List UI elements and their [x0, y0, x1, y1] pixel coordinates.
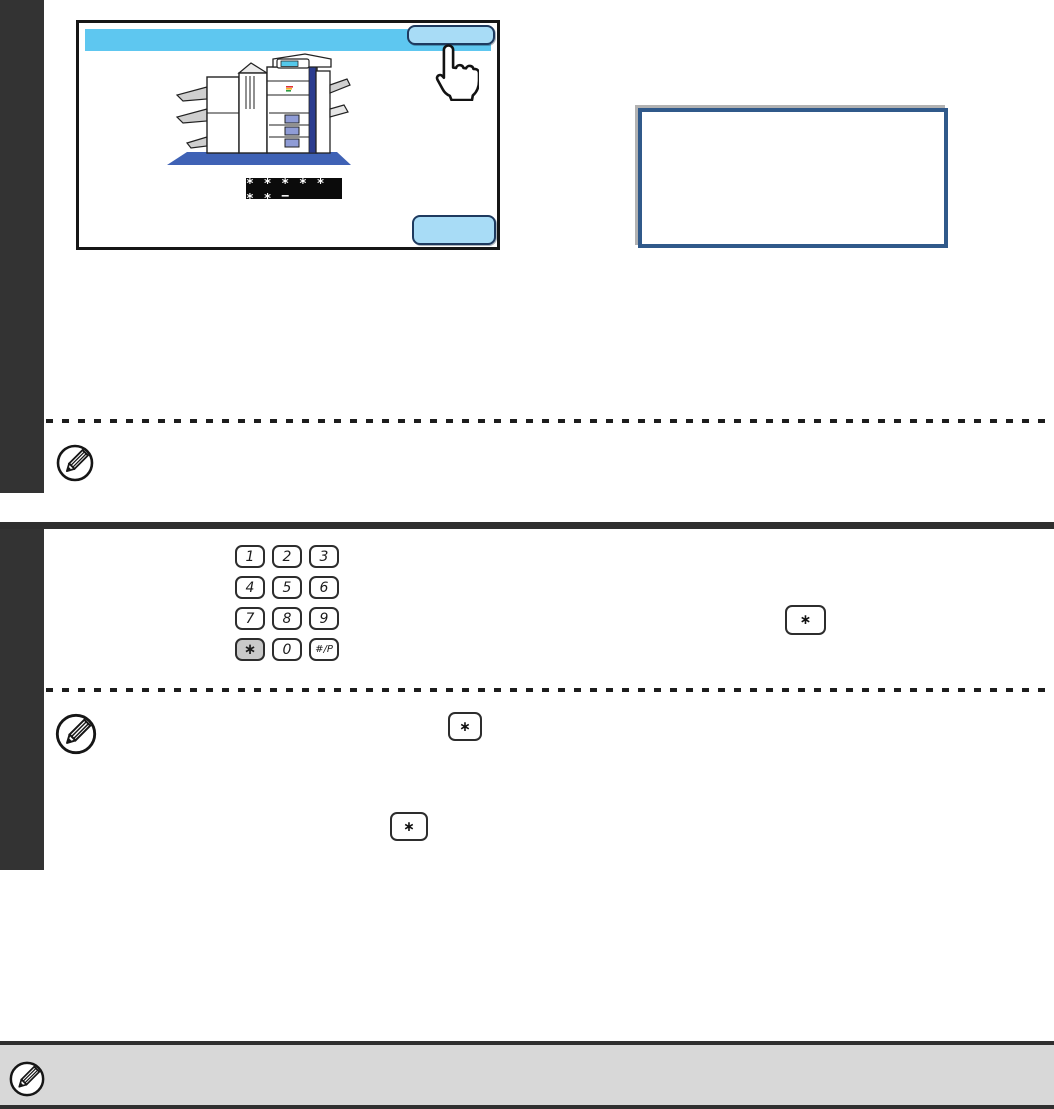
- keypad-key-9[interactable]: 9: [309, 607, 339, 630]
- ok-touch-button[interactable]: [412, 215, 496, 245]
- keypad-key-hash-p[interactable]: #/P: [309, 638, 339, 661]
- multifunction-printer-illustration: [161, 51, 355, 171]
- dashed-separator: [46, 688, 1050, 692]
- callout-box: [638, 108, 948, 248]
- note-pencil-icon: [8, 1060, 46, 1098]
- dashed-separator: [46, 419, 1050, 423]
- keypad-key-star[interactable]: ∗: [235, 638, 265, 661]
- keypad-key-6[interactable]: 6: [309, 576, 339, 599]
- note-pencil-icon: [54, 712, 98, 756]
- keypad-key-1[interactable]: 1: [235, 545, 265, 568]
- keypad-key-2[interactable]: 2: [272, 545, 302, 568]
- pointing-hand-cursor: [427, 41, 479, 101]
- keypad-key-8[interactable]: 8: [272, 607, 302, 630]
- machine-shadow: [167, 152, 351, 165]
- note-pencil-icon: [55, 443, 95, 483]
- bottom-note-bar: [0, 1041, 1054, 1109]
- keypad-key-0[interactable]: 0: [272, 638, 302, 661]
- chapter-sidebar-top: [0, 0, 44, 493]
- chapter-sidebar-bottom: [0, 529, 44, 870]
- touch-panel-screenshot: ∗ ∗ ∗ ∗ ∗ ∗ ∗ −: [76, 20, 500, 250]
- numeric-keypad: 1 2 3 4 5 6 7 8 9 ∗ 0 #/P: [235, 545, 339, 661]
- inline-star-key: ∗: [390, 812, 428, 841]
- keypad-key-5[interactable]: 5: [272, 576, 302, 599]
- manual-page: ∗ ∗ ∗ ∗ ∗ ∗ ∗ − 1 2 3 4 5 6 7 8 9 ∗ 0: [0, 0, 1054, 1109]
- keypad-key-3[interactable]: 3: [309, 545, 339, 568]
- section-divider-bar: [0, 522, 1054, 529]
- inline-star-key: ∗: [448, 712, 482, 741]
- inline-star-key: ∗: [785, 605, 826, 635]
- keypad-key-4[interactable]: 4: [235, 576, 265, 599]
- control-panel-screen: [281, 61, 298, 67]
- keypad-key-7[interactable]: 7: [235, 607, 265, 630]
- password-display: ∗ ∗ ∗ ∗ ∗ ∗ ∗ −: [246, 178, 342, 199]
